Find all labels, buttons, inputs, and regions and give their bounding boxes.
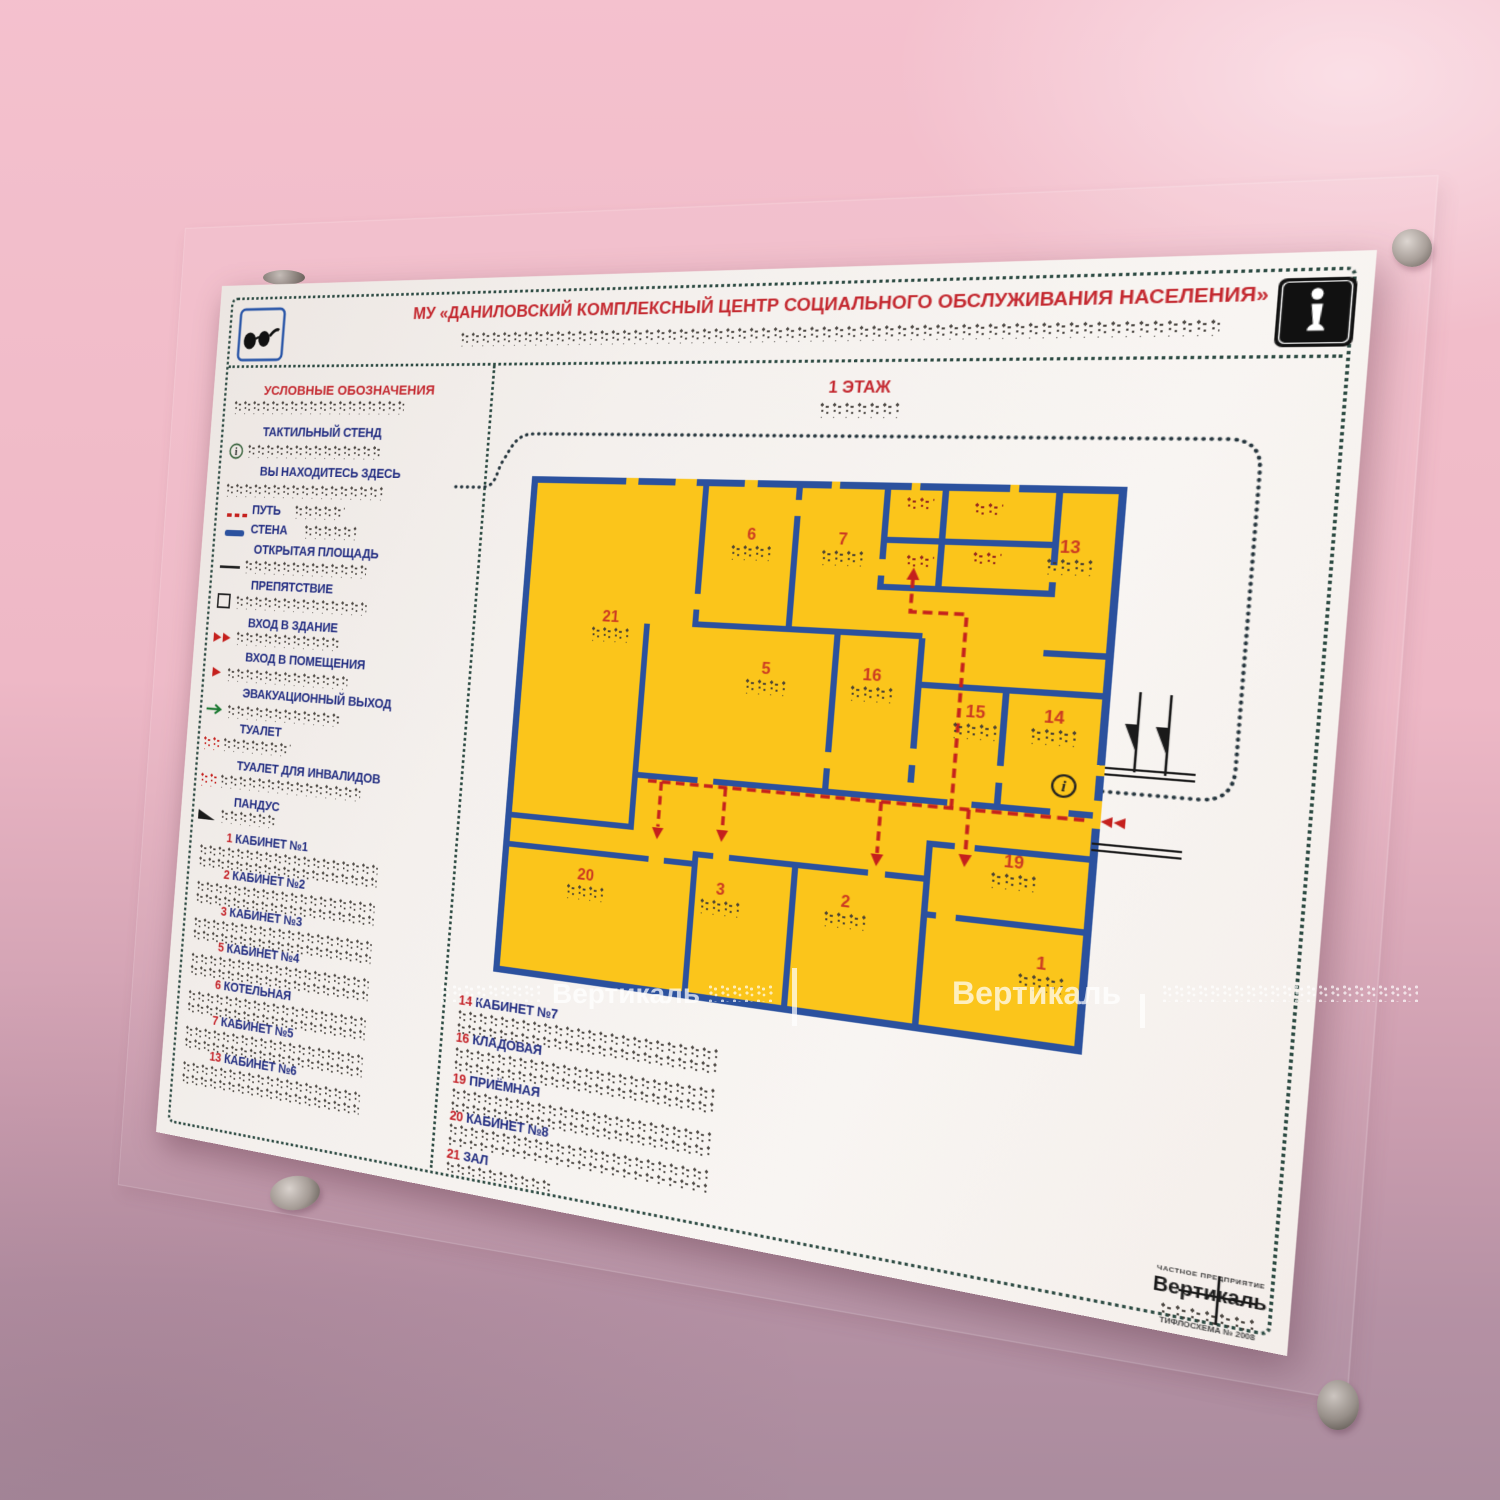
svg-text:i: i [234,446,238,458]
